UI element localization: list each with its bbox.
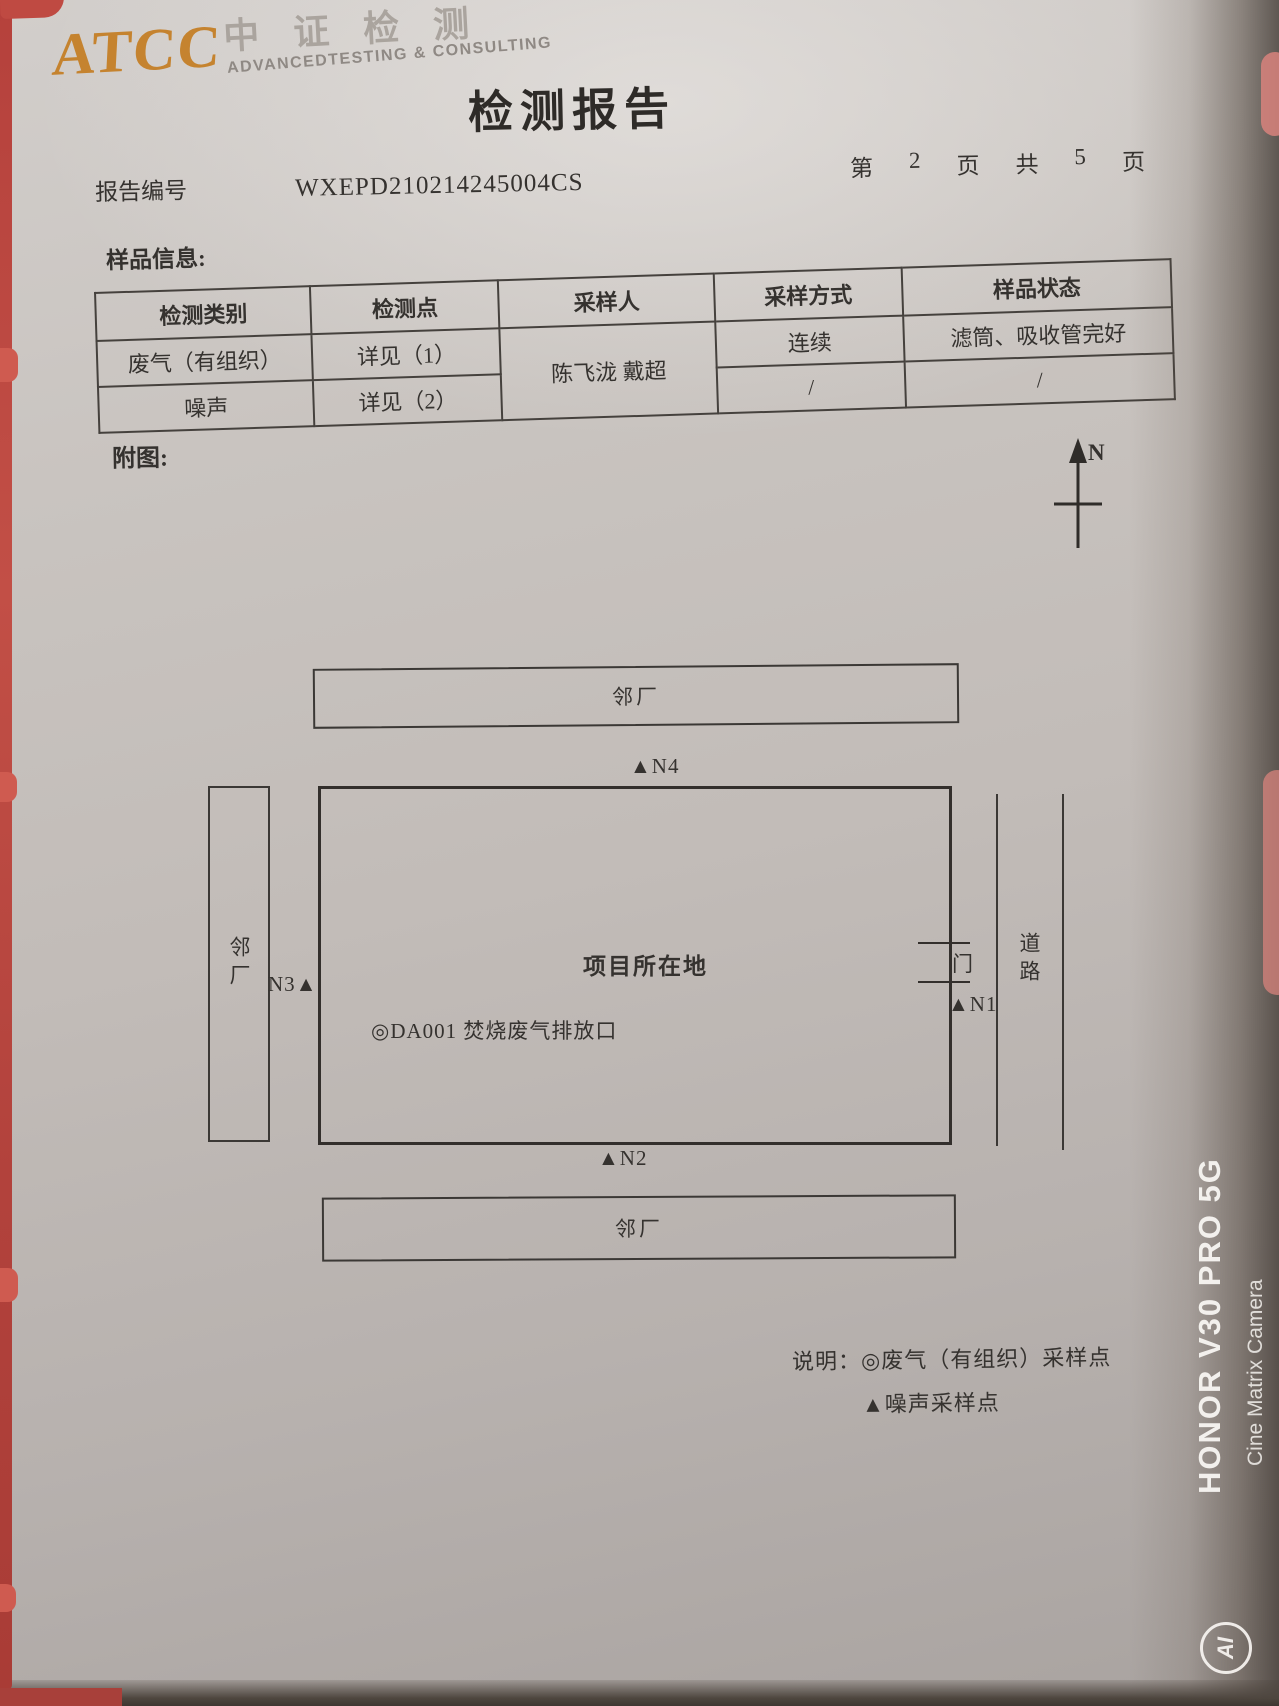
camera-watermark-mode: Cine Matrix Camera — [1244, 1166, 1268, 1466]
project-site-label: 项目所在地 — [583, 947, 708, 981]
noise-point-n4: ▲N4 — [630, 754, 679, 779]
photo-of-report: ATCC 中证检测 ADVANCEDTESTING & CONSULTING 检… — [0, 0, 1279, 1706]
west-neighbor-factory-box: 邻厂 — [208, 786, 270, 1142]
west-neighbor-factory-label: 邻厂 — [224, 936, 254, 992]
photo-edge-artifact — [0, 1268, 18, 1302]
south-neighbor-factory-box: 邻厂 — [322, 1194, 956, 1261]
photo-edge-artifact — [1263, 770, 1279, 995]
south-neighbor-factory-label: 邻厂 — [615, 1213, 663, 1243]
north-neighbor-factory-label: 邻厂 — [612, 681, 660, 711]
photo-edge-artifact — [0, 348, 18, 382]
camera-watermark-model: HONOR V30 PRO 5G — [1192, 1124, 1228, 1494]
site-diagram: 邻厂 ▲N4 邻厂 N3▲ 项目所在地 ◎DA001 焚烧废气排放口 门 ▲N1… — [0, 0, 1279, 1706]
gate-tick-top — [918, 942, 970, 944]
legend-noise-point: ▲噪声采样点 — [862, 1390, 1000, 1417]
legend-title: 说明： — [792, 1348, 861, 1374]
road-line-west — [996, 794, 998, 1146]
gate-label: 门 — [952, 948, 973, 978]
camera-ai-badge-icon: AI — [1200, 1622, 1252, 1674]
photo-bottom-edge — [0, 1680, 1279, 1706]
gate-tick-bottom — [918, 981, 970, 983]
noise-point-n1: ▲N1 — [948, 992, 997, 1017]
emission-outlet-label: ◎DA001 焚烧废气排放口 — [371, 1015, 617, 1045]
photo-edge-artifact — [0, 1584, 16, 1612]
road-label: 道路 — [1014, 932, 1044, 988]
photo-left-red-edge — [0, 0, 12, 1690]
project-site-box: 项目所在地 ◎DA001 焚烧废气排放口 — [318, 786, 952, 1145]
north-neighbor-factory-box: 邻厂 — [313, 663, 959, 729]
legend-gas-point: ◎废气（有组织）采样点 — [861, 1345, 1112, 1373]
photo-edge-artifact — [0, 772, 17, 802]
noise-point-n3: N3▲ — [268, 972, 317, 997]
photo-edge-artifact — [1261, 52, 1279, 136]
noise-point-n2: ▲N2 — [598, 1146, 647, 1171]
road-line-east — [1062, 794, 1064, 1150]
legend-noise-line: ▲噪声采样点 — [862, 1385, 1000, 1419]
photo-edge-artifact — [0, 1688, 122, 1706]
legend-gas-line: 说明：◎废气（有组织）采样点 — [792, 1340, 1112, 1376]
